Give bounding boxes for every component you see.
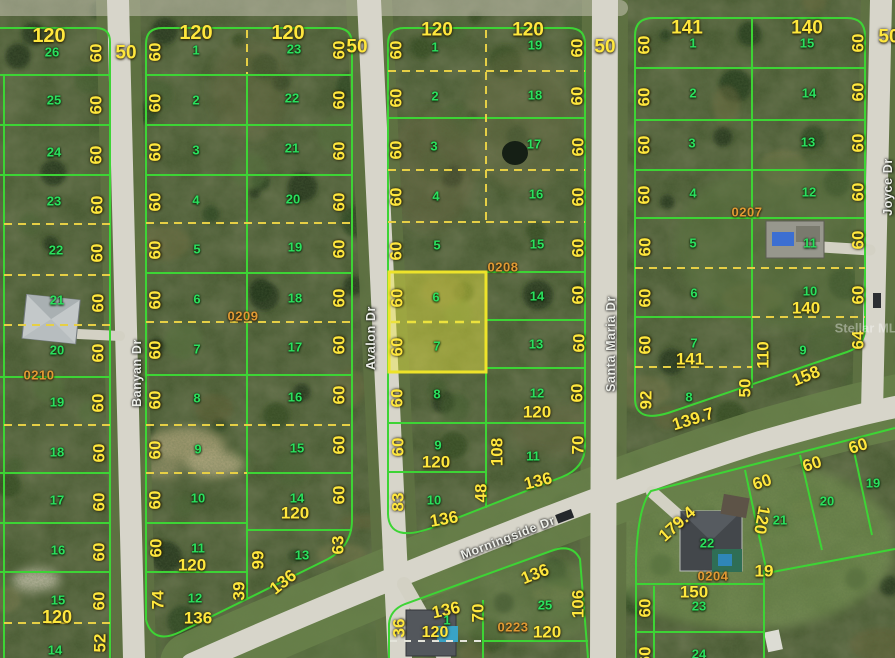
pond	[502, 141, 528, 165]
pool	[437, 626, 458, 642]
pool	[718, 554, 732, 566]
santa-maria-dr-road	[603, 0, 605, 658]
house-lot21-0210	[22, 294, 80, 343]
joyce-dr-road	[872, 0, 881, 412]
house-lot1-0223	[406, 610, 458, 656]
aerial-parcel-map: 1206060606060606060606060601205250505050…	[0, 0, 895, 658]
vehicle	[873, 293, 881, 308]
pool	[772, 232, 794, 246]
map-canvas	[0, 0, 895, 658]
house-lot11-0207	[766, 221, 824, 258]
